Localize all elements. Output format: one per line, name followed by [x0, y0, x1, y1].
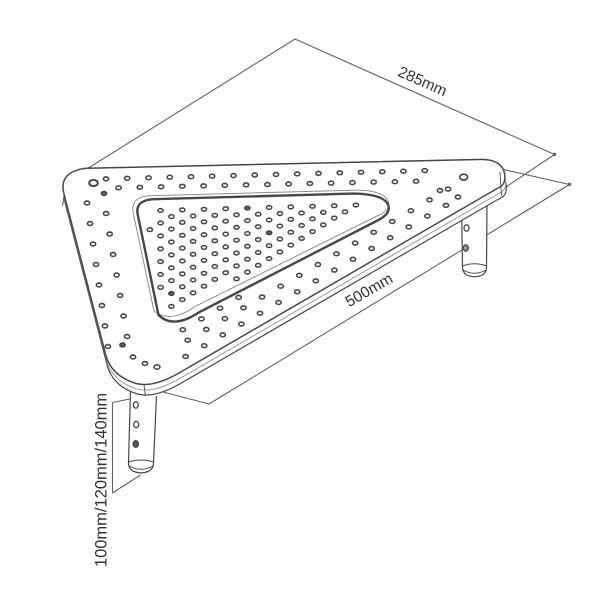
svg-text:100mm/120mm/140mm: 100mm/120mm/140mm	[93, 393, 111, 567]
